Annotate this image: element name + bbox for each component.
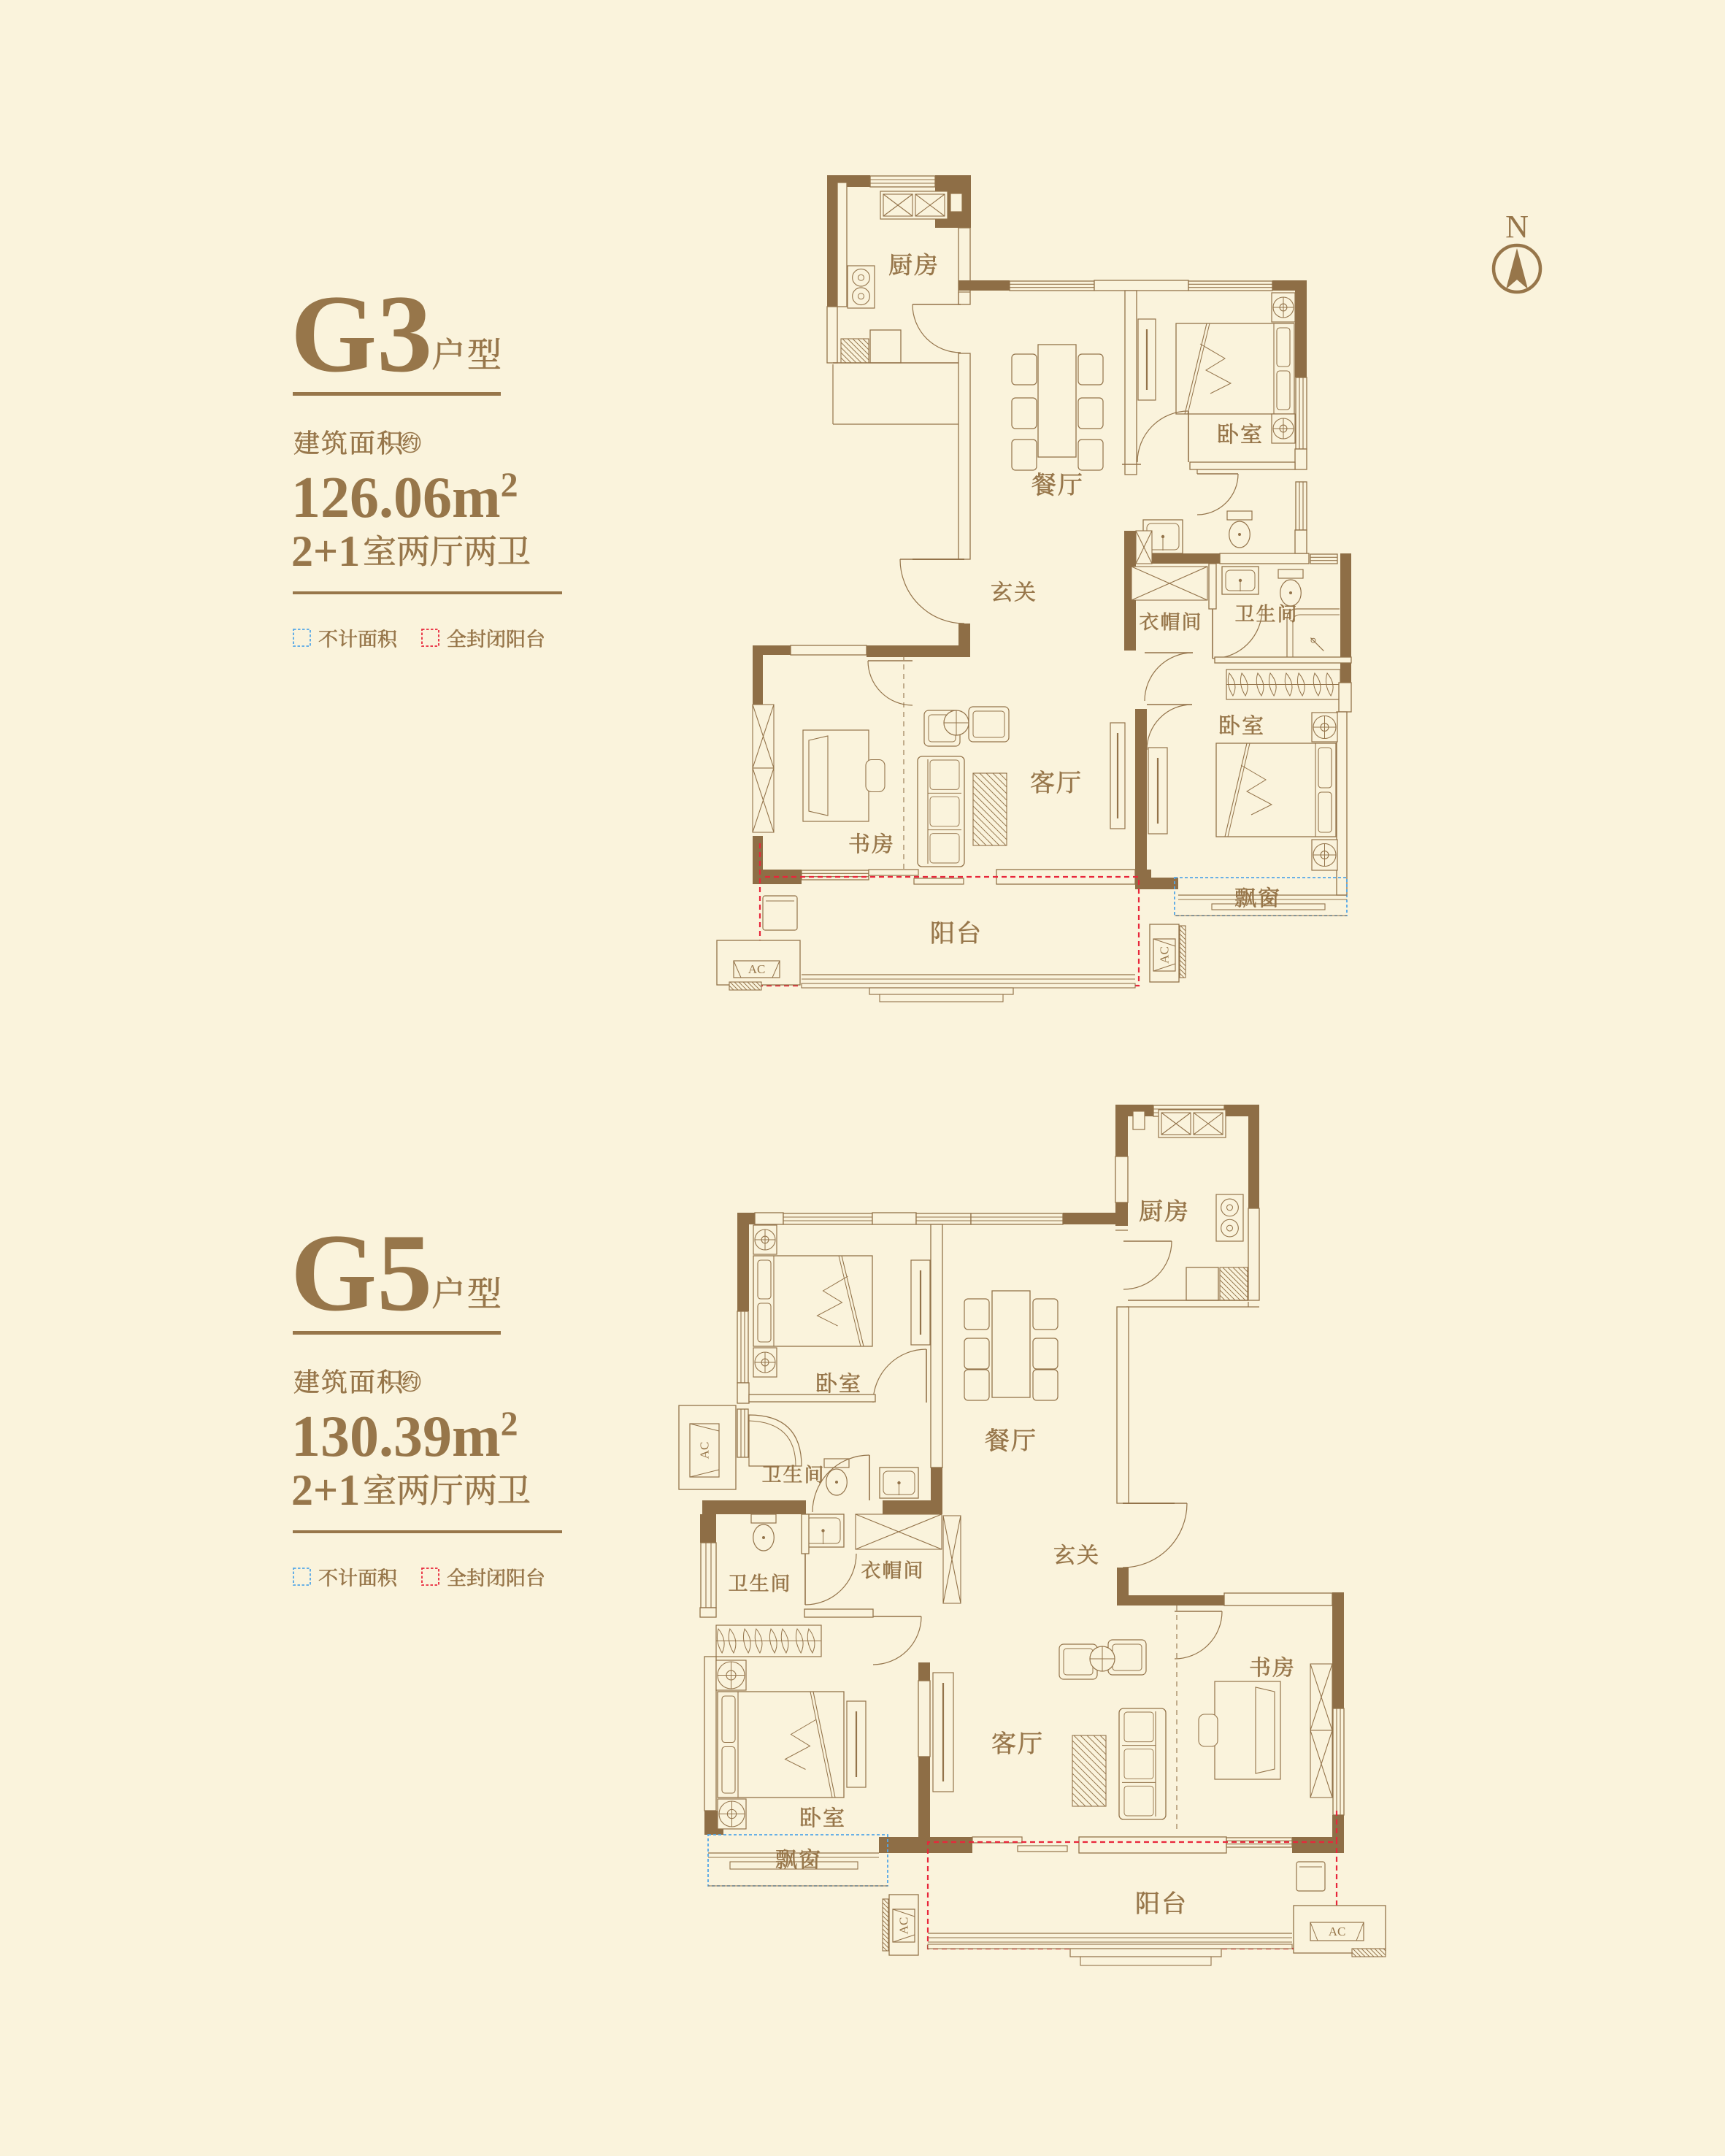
svg-text:G5: G5	[291, 1211, 432, 1334]
svg-text:2+1: 2+1	[291, 527, 360, 575]
svg-text:N: N	[1505, 209, 1529, 245]
svg-text:2+1: 2+1	[291, 1466, 360, 1514]
svg-text:AC: AC	[748, 962, 766, 976]
svg-text:AC: AC	[698, 1442, 712, 1459]
svg-text:AC: AC	[1329, 1925, 1346, 1938]
svg-text:AC: AC	[1158, 946, 1172, 964]
svg-text:AC: AC	[897, 1917, 911, 1935]
svg-text:130.39m2: 130.39m2	[291, 1405, 518, 1469]
svg-text:126.06m2: 126.06m2	[291, 466, 518, 530]
svg-text:G3: G3	[291, 272, 432, 395]
